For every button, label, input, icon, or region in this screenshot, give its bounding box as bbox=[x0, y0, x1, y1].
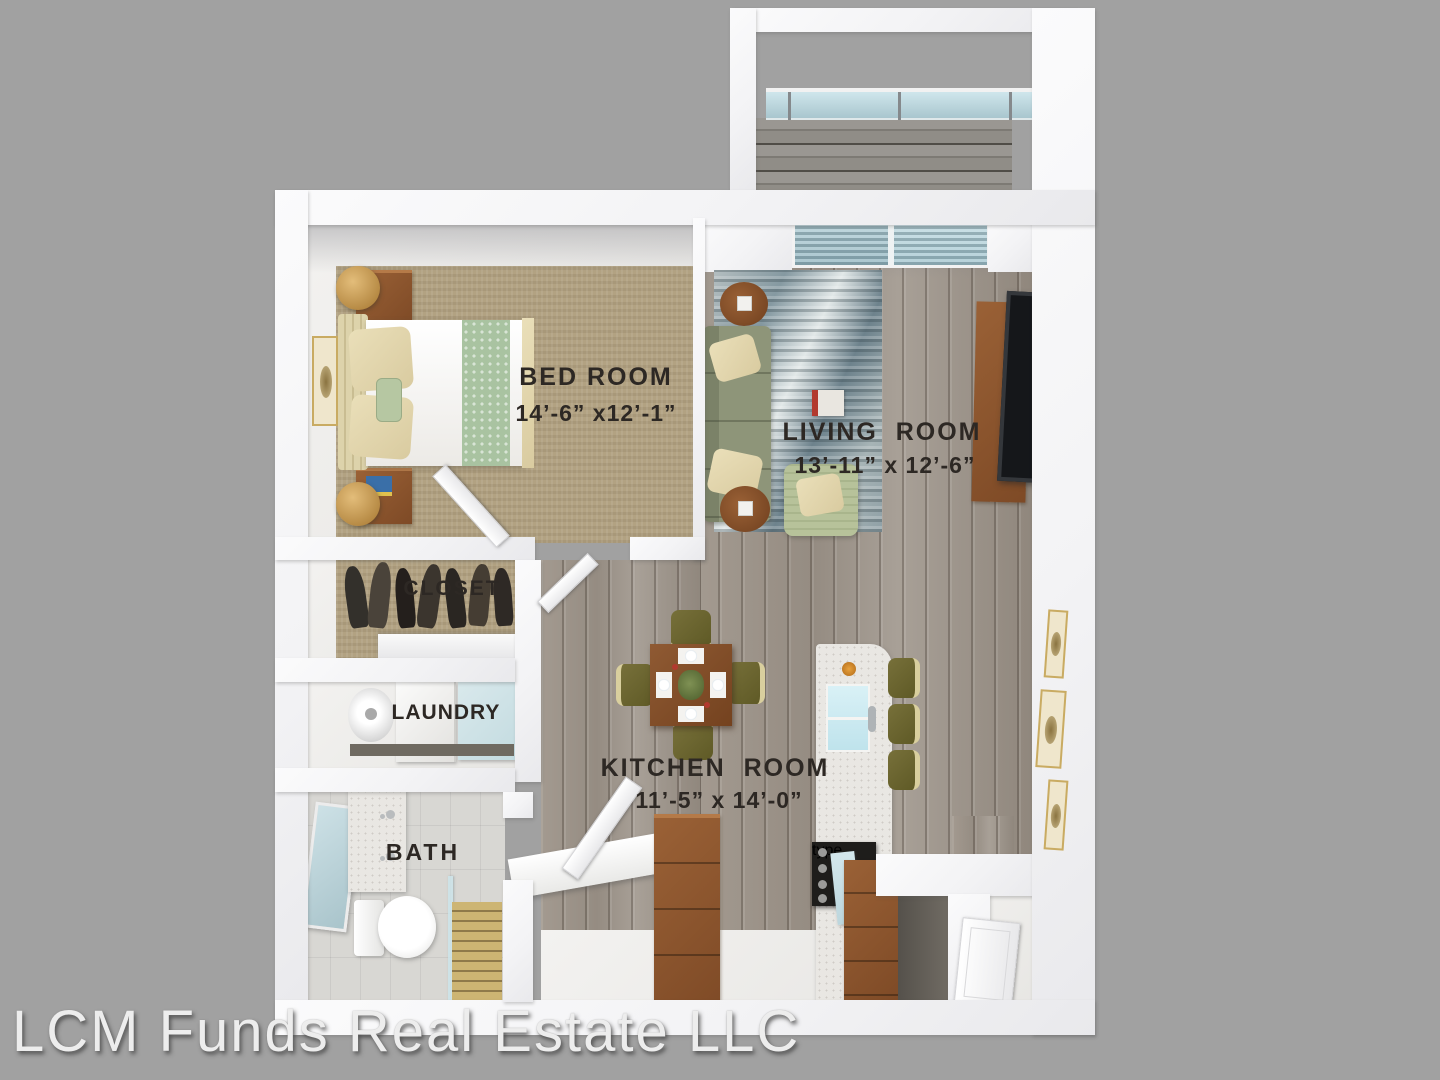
hanging-garment bbox=[367, 561, 394, 629]
stove-knob bbox=[818, 880, 827, 889]
art-motif bbox=[320, 366, 332, 398]
dining-chair bbox=[616, 664, 654, 706]
closet-bottom-wall bbox=[275, 658, 515, 682]
railing-post bbox=[1009, 92, 1012, 120]
balcony-top-wall bbox=[733, 8, 1078, 32]
hallway-wall-art bbox=[1035, 689, 1066, 769]
side-table bbox=[720, 282, 768, 326]
table-lamp bbox=[336, 266, 380, 310]
bedroom-label: BED ROOM bbox=[480, 363, 712, 392]
window-pane bbox=[795, 223, 888, 265]
laundry-label: LAUNDRY bbox=[386, 701, 506, 725]
side-table bbox=[720, 486, 770, 532]
candle bbox=[738, 501, 753, 516]
bath-right-wall-upper bbox=[503, 792, 533, 818]
stove-knob bbox=[818, 894, 827, 903]
bar-stool bbox=[888, 750, 920, 790]
sink-divider bbox=[828, 717, 868, 720]
plate bbox=[685, 650, 697, 662]
laundry-bottom-wall bbox=[275, 768, 515, 792]
plate bbox=[712, 679, 724, 691]
closet-label: CLOSET bbox=[392, 577, 512, 601]
art-motif bbox=[1050, 804, 1062, 829]
left-exterior-wall bbox=[275, 190, 308, 1035]
faucet bbox=[386, 810, 395, 819]
railing-post bbox=[788, 92, 791, 120]
balcony-deck bbox=[750, 118, 1012, 192]
plate bbox=[685, 708, 697, 720]
right-exterior-wall bbox=[1032, 8, 1095, 1035]
placemat bbox=[710, 672, 726, 698]
toilet-bowl bbox=[378, 896, 436, 958]
entry-door-flat bbox=[954, 917, 1021, 1011]
kitchen-label: KITCHEN ROOM bbox=[595, 754, 835, 783]
balcony-glass-railing bbox=[766, 88, 1034, 120]
laundry-shelf-shadow bbox=[350, 744, 514, 756]
bedroom-ceiling-shade bbox=[300, 218, 698, 273]
armchair-pillow bbox=[795, 472, 845, 517]
berry-accent bbox=[672, 664, 678, 670]
table-centerpiece-plant bbox=[678, 670, 704, 700]
bed-footboard bbox=[522, 318, 534, 468]
coffee-table-books bbox=[812, 390, 844, 416]
berry-accent bbox=[704, 702, 710, 708]
window-pane bbox=[894, 223, 987, 265]
bath-label: BATH bbox=[378, 839, 468, 866]
fruit-bowl bbox=[842, 662, 856, 676]
roll-core bbox=[365, 708, 377, 720]
window-side-wall bbox=[700, 218, 792, 272]
sink-faucet bbox=[868, 706, 876, 732]
bedroom-bottom-wall-right bbox=[630, 537, 705, 560]
plate bbox=[658, 679, 670, 691]
entry-opening-shadow bbox=[898, 888, 950, 1000]
living-room-dimensions: 13’-11” x 12’-6” bbox=[735, 452, 1035, 479]
kitchen-sideboard bbox=[654, 814, 720, 1016]
stove-knob bbox=[818, 864, 827, 873]
door-panel-line bbox=[963, 927, 1010, 1001]
bedroom-wall-art bbox=[312, 336, 338, 426]
closet-shelf bbox=[378, 634, 515, 660]
top-exterior-wall bbox=[275, 190, 1095, 225]
window-side-wall bbox=[988, 218, 1032, 272]
entry-partition-horizontal bbox=[876, 854, 1042, 896]
art-motif bbox=[1044, 716, 1058, 745]
bar-stool bbox=[888, 658, 920, 698]
living-window bbox=[792, 220, 990, 268]
hanging-garment bbox=[342, 565, 370, 629]
watermark-text: LCM Funds Real Estate LLC bbox=[12, 998, 800, 1065]
railing-post bbox=[898, 92, 901, 120]
bed-accent-pillow bbox=[376, 378, 402, 422]
bar-stool bbox=[888, 704, 920, 744]
floor-plan-stage: type BED ROOM 14’-6” x12’-1” LIVING ROOM… bbox=[0, 0, 1440, 1080]
bath-right-wall-lower bbox=[503, 880, 533, 1002]
dining-chair bbox=[727, 662, 765, 704]
dining-table bbox=[650, 644, 732, 726]
placemat bbox=[678, 648, 704, 664]
stove-knob bbox=[818, 848, 827, 857]
bedroom-dimensions: 14’-6” x12’-1” bbox=[446, 400, 746, 427]
island-sink bbox=[826, 684, 870, 752]
kitchen-dimensions: 11’-5” x 14’-0” bbox=[569, 787, 869, 814]
bed-throw-band bbox=[462, 320, 510, 466]
placemat bbox=[678, 706, 704, 722]
hallway-wall bbox=[515, 560, 541, 782]
candle bbox=[737, 296, 752, 311]
placemat bbox=[656, 672, 672, 698]
shower-mat bbox=[452, 902, 502, 1004]
balcony-left-wall bbox=[730, 8, 756, 192]
living-room-label: LIVING ROOM bbox=[762, 418, 1002, 447]
table-lamp bbox=[336, 482, 380, 526]
art-motif bbox=[1050, 632, 1062, 657]
